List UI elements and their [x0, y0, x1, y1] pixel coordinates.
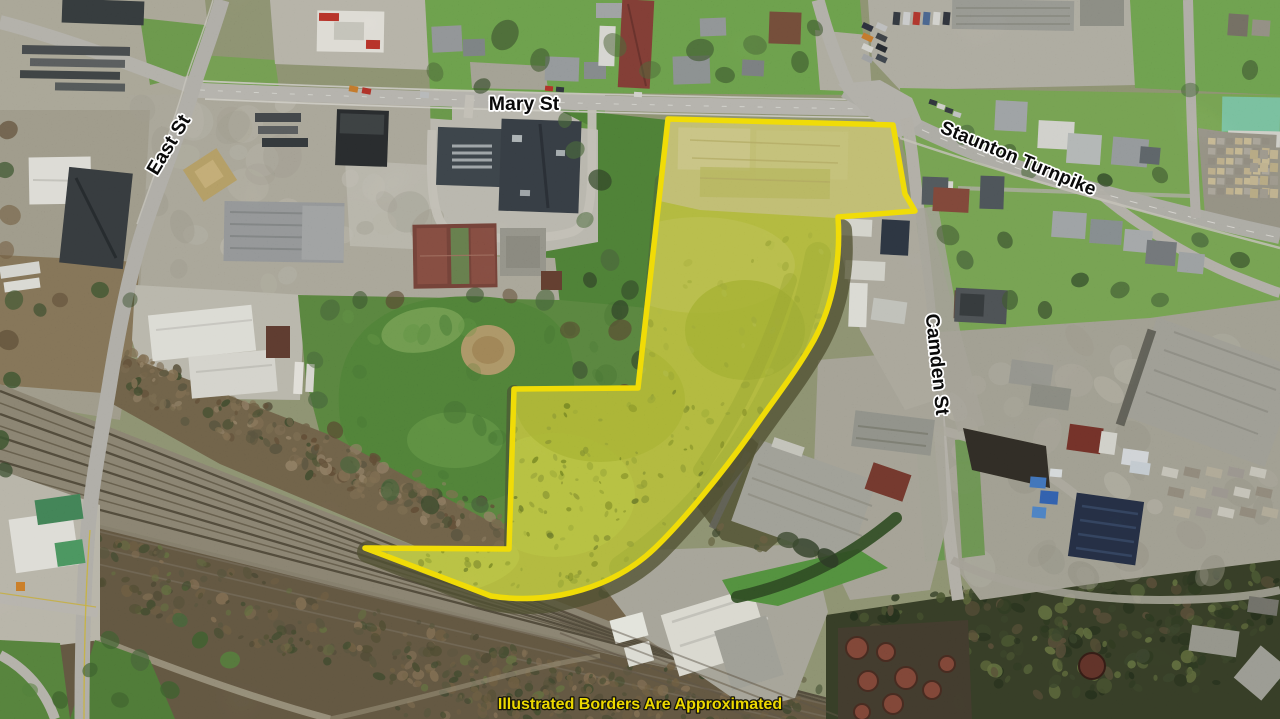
- svg-text:Mary St: Mary St: [489, 93, 560, 115]
- svg-text:Illustrated Borders Are Approx: Illustrated Borders Are Approximated: [498, 696, 782, 713]
